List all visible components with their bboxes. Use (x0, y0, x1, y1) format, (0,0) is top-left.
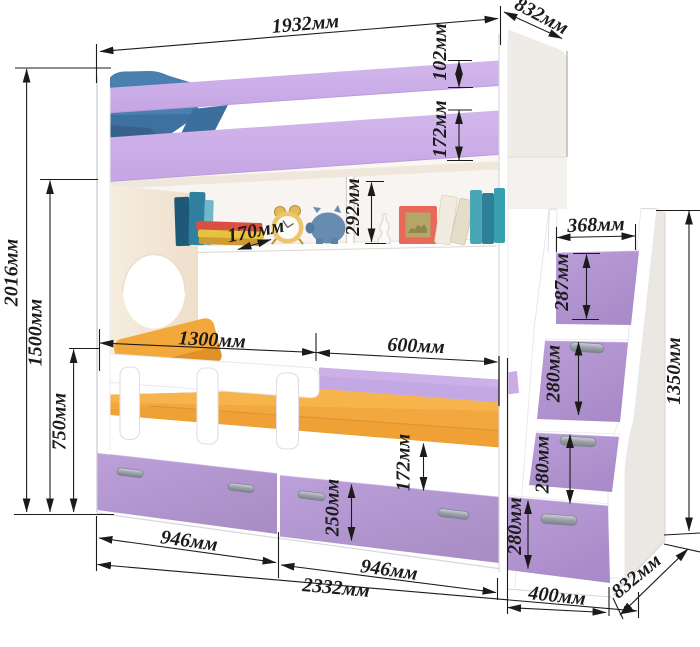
svg-text:102мм: 102мм (429, 23, 451, 81)
svg-text:750мм: 750мм (49, 393, 71, 451)
svg-text:172мм: 172мм (393, 434, 415, 492)
svg-text:1500мм: 1500мм (25, 299, 47, 367)
svg-text:2016мм: 2016мм (1, 239, 23, 308)
svg-text:400мм: 400мм (526, 582, 587, 610)
svg-text:1350мм: 1350мм (663, 337, 685, 405)
svg-text:1300мм: 1300мм (178, 327, 247, 353)
svg-text:280мм: 280мм (532, 436, 554, 495)
svg-text:292мм: 292мм (342, 178, 364, 237)
svg-text:280мм: 280мм (543, 345, 565, 404)
svg-text:2332мм: 2332мм (301, 574, 371, 602)
svg-text:280мм: 280мм (504, 497, 526, 556)
svg-text:946мм: 946мм (159, 526, 219, 556)
svg-text:172мм: 172мм (429, 100, 451, 158)
svg-text:368мм: 368мм (566, 213, 625, 237)
svg-text:250мм: 250мм (322, 479, 344, 538)
svg-text:287мм: 287мм (551, 253, 573, 312)
svg-text:1932мм: 1932мм (271, 10, 340, 38)
svg-text:600мм: 600мм (387, 334, 446, 358)
